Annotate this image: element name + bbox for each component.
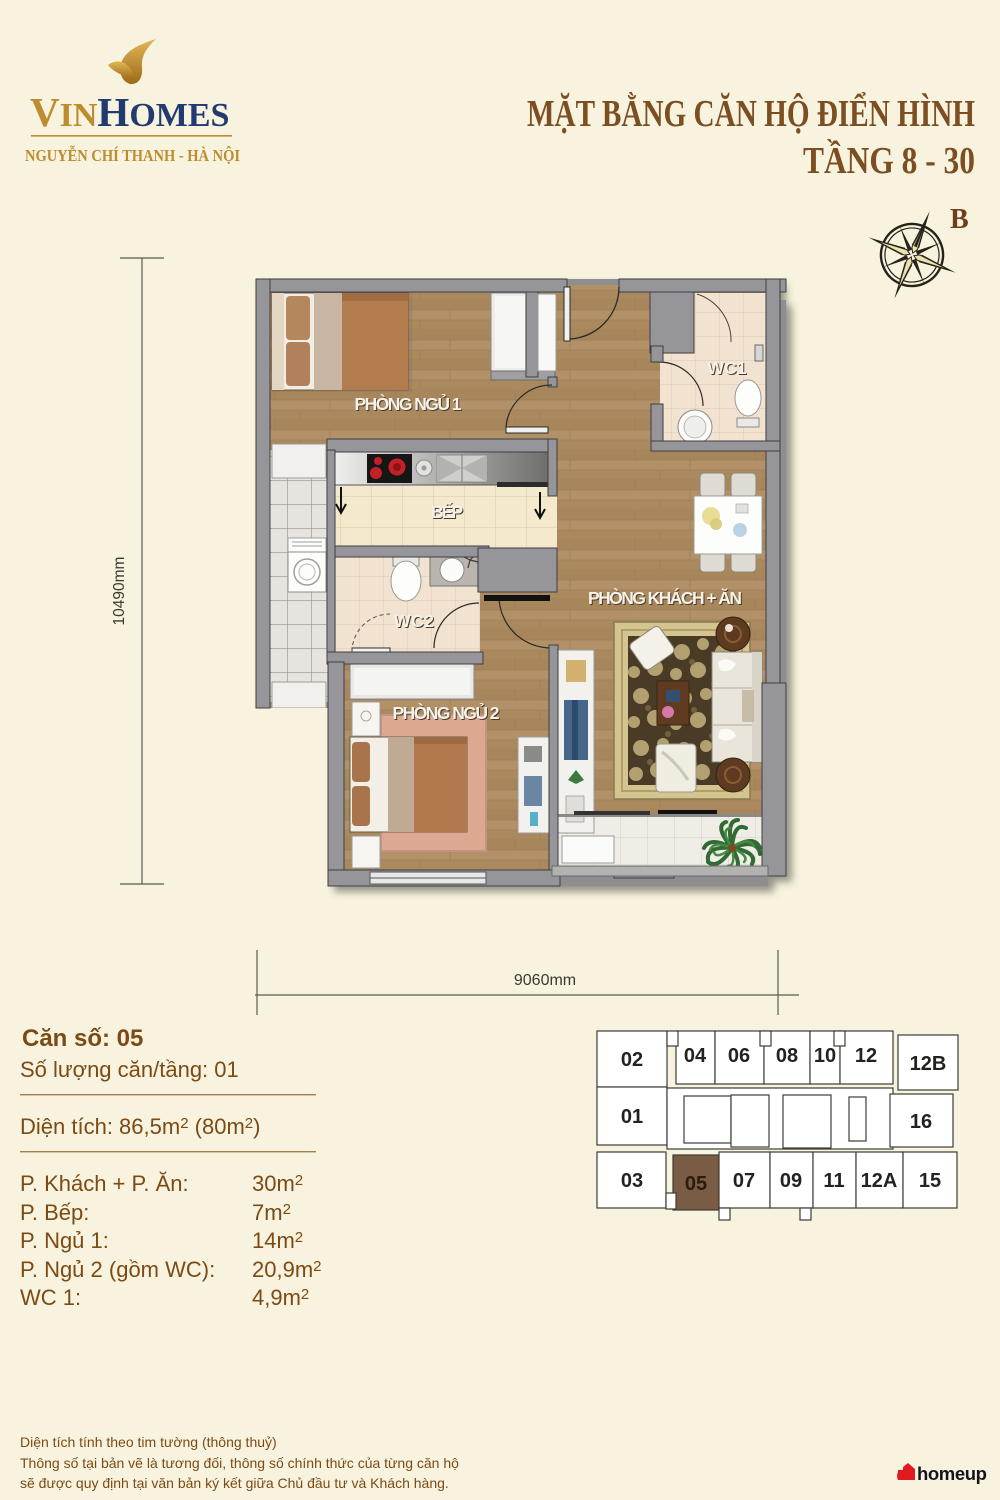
svg-text:B: B	[950, 204, 969, 235]
svg-text:PHÒNG NGỦ 2: PHÒNG NGỦ 2	[393, 702, 500, 723]
svg-text:06: 06	[728, 1045, 750, 1067]
svg-text:11: 11	[823, 1170, 844, 1192]
svg-text:WC1: WC1	[708, 358, 747, 378]
svg-text:PHÒNG KHÁCH + ĂN: PHÒNG KHÁCH + ĂN	[588, 587, 742, 608]
svg-text:05: 05	[685, 1173, 707, 1195]
svg-text:16: 16	[910, 1111, 932, 1133]
svg-text:07: 07	[733, 1170, 755, 1192]
svg-text:12: 12	[855, 1045, 877, 1067]
svg-text:sẽ được quy định tại văn bản k: sẽ được quy định tại văn bản ký kết giữa…	[20, 1475, 449, 1491]
svg-text:12A: 12A	[861, 1170, 898, 1192]
svg-text:WC 1:: WC 1:	[20, 1285, 81, 1310]
svg-text:P. Bếp:: P. Bếp:	[20, 1200, 89, 1225]
svg-text:MẶT BẰNG CĂN HỘ ĐIỂN HÌNH: MẶT BẰNG CĂN HỘ ĐIỂN HÌNH	[527, 92, 975, 135]
svg-text:NGUYỄN CHÍ THANH - HÀ NỘI: NGUYỄN CHÍ THANH - HÀ NỘI	[25, 146, 240, 165]
svg-text:01: 01	[621, 1106, 643, 1128]
svg-text:08: 08	[776, 1045, 798, 1067]
svg-text:WC2: WC2	[394, 611, 434, 631]
svg-text:P. Khách + P. Ăn:: P. Khách + P. Ăn:	[20, 1171, 189, 1196]
svg-text:BẾP: BẾP	[431, 501, 463, 522]
svg-text:Diện tích: 86,5m2 (80m2): Diện tích: 86,5m2 (80m2)	[20, 1114, 260, 1139]
svg-text:PHÒNG NGỦ 1: PHÒNG NGỦ 1	[355, 393, 462, 414]
svg-text:Căn số: 05: Căn số: 05	[22, 1025, 143, 1052]
svg-text:9060mm: 9060mm	[514, 972, 576, 989]
svg-text:15: 15	[919, 1170, 941, 1192]
svg-text:TẦNG 8 - 30: TẦNG 8 - 30	[803, 139, 975, 182]
svg-text:04: 04	[684, 1045, 707, 1067]
svg-text:Diện tích tính theo tim tường: Diện tích tính theo tim tường (thông thu…	[20, 1434, 277, 1450]
svg-text:09: 09	[780, 1170, 802, 1192]
svg-text:02: 02	[621, 1049, 643, 1071]
svg-text:Thông số tại bản vẽ là tương đ: Thông số tại bản vẽ là tương đối, thông …	[20, 1455, 459, 1471]
svg-text:03: 03	[621, 1170, 643, 1192]
svg-text:10: 10	[814, 1045, 836, 1067]
svg-text:homeup: homeup	[917, 1463, 987, 1484]
svg-text:Số lượng căn/tầng: 01: Số lượng căn/tầng: 01	[20, 1057, 239, 1082]
svg-text:12B: 12B	[910, 1053, 947, 1075]
svg-text:P. Ngủ 1:: P. Ngủ 1:	[20, 1228, 109, 1253]
svg-text:P. Ngủ 2 (gồm WC):: P. Ngủ 2 (gồm WC):	[20, 1257, 215, 1282]
svg-text:10490mm: 10490mm	[111, 557, 128, 626]
svg-text:4,9m2: 4,9m2	[252, 1285, 309, 1310]
svg-text:20,9m2: 20,9m2	[252, 1257, 322, 1282]
